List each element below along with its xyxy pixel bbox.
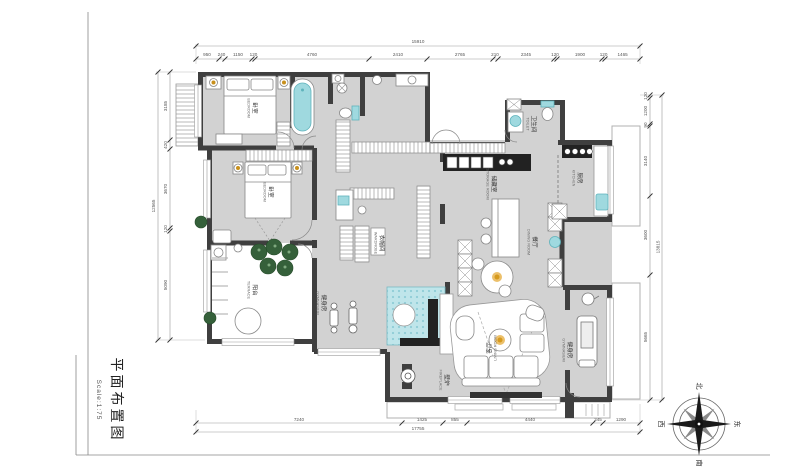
dim-text: 4760	[307, 52, 318, 57]
svg-text:KITCHEN: KITCHEN	[572, 170, 576, 187]
room-label-gym-center: 健身房GYMNASIUM	[316, 291, 329, 314]
sink-icon	[510, 116, 521, 127]
vanity-counter	[396, 74, 428, 86]
round-table	[393, 304, 415, 326]
round-table	[235, 308, 261, 334]
dim-text: 120	[600, 52, 608, 57]
treadmill-icon	[577, 316, 597, 367]
dim-text: 240	[218, 52, 226, 57]
svg-text:STORAGE ROOM: STORAGE ROOM	[486, 168, 490, 199]
dim-text: 950	[203, 52, 211, 57]
dim-text: 17755	[412, 426, 425, 431]
dim-text: 345	[594, 417, 602, 422]
room-label-wardrobe: 衣帽间WARDROBE	[374, 232, 387, 255]
floor-plan-page: 卧室BEDROOM 卧室BEDROOM 卫生间TOILET 厨房KITCHEN …	[0, 0, 800, 467]
svg-text:餐厅: 餐厅	[531, 236, 539, 248]
bar-counter	[492, 199, 519, 257]
svg-text:健身房: 健身房	[320, 295, 328, 312]
washer	[507, 99, 521, 110]
dim-text: 120	[643, 92, 648, 100]
kitchen-bay	[612, 126, 640, 226]
dim-text: 2345	[521, 52, 532, 57]
sink-icon	[596, 194, 608, 210]
svg-text:GYMNASIUM: GYMNASIUM	[316, 291, 320, 314]
svg-text:衣帽间: 衣帽间	[378, 235, 386, 252]
bathtub-icon	[291, 79, 314, 135]
dim-text: 3140	[643, 155, 648, 166]
stool	[234, 244, 242, 252]
svg-text:FIREPLACE: FIREPLACE	[439, 369, 443, 391]
dim-text: 120	[163, 225, 168, 233]
svg-text:卧室: 卧室	[267, 186, 275, 198]
drawing-title: 平面布置图	[109, 358, 125, 443]
toilet-icon	[541, 101, 554, 121]
svg-text:GYMNASIUM: GYMNASIUM	[562, 338, 566, 361]
fridge	[552, 204, 567, 219]
svg-text:WARDROBE: WARDROBE	[374, 232, 378, 255]
compass-south-label: 南	[695, 460, 704, 467]
stool	[481, 218, 491, 228]
stool	[481, 234, 491, 244]
dim-text: 1900	[575, 52, 586, 57]
room-label-toilet: 卫生间TOILET	[526, 116, 539, 133]
dim-text: 2765	[455, 52, 466, 57]
dim-text: 13815	[656, 240, 661, 253]
dim-text: 3600	[643, 229, 648, 240]
wall-column	[565, 393, 574, 418]
shower-icon	[337, 83, 347, 93]
svg-text:阳台: 阳台	[251, 284, 259, 296]
svg-text:DINING ROOM: DINING ROOM	[527, 229, 531, 255]
dim-text: 12565	[151, 199, 156, 212]
dim-text: 120	[551, 52, 559, 57]
compass-west-label: 西	[657, 421, 665, 428]
svg-text:BEDROOM: BEDROOM	[247, 98, 251, 118]
stool	[358, 206, 366, 214]
dim-text: 1200	[643, 105, 648, 116]
gym-bay	[612, 283, 640, 399]
dim-text: 1290	[616, 417, 627, 422]
dim-text: 15910	[412, 39, 425, 44]
dim-text: 120	[250, 52, 258, 57]
tall-cabinets	[458, 240, 472, 296]
svg-text:TOILET: TOILET	[526, 117, 530, 131]
dim-text: 2410	[393, 52, 404, 57]
dim-text: 4440	[525, 417, 536, 422]
dim-text: 5090	[163, 279, 168, 290]
svg-text:TERRACE: TERRACE	[247, 281, 251, 300]
bench	[216, 134, 242, 144]
svg-text:健身房: 健身房	[566, 342, 574, 359]
dim-text: 5665	[643, 331, 648, 342]
svg-text:卫生间: 卫生间	[530, 116, 538, 133]
chaise	[456, 316, 474, 340]
dim-text: 1425	[417, 417, 428, 422]
svg-text:厨房: 厨房	[576, 172, 584, 184]
svg-text:壁炉: 壁炉	[443, 374, 451, 386]
room-label-gym-right: 健身房GYMNASIUM	[562, 338, 575, 361]
shower-icon	[373, 76, 382, 85]
dresser	[213, 230, 231, 243]
dim-text: 3185	[163, 100, 168, 111]
dim-text: 855	[451, 417, 459, 422]
compass-rose-icon: 北 东 南 西	[657, 383, 742, 467]
dim-text: 420	[163, 141, 168, 149]
drawing-scale: Scale:1:75	[95, 380, 102, 421]
svg-text:客厅: 客厅	[485, 342, 493, 354]
compass-north-label: 北	[695, 383, 703, 390]
svg-text:LIVING ROOM: LIVING ROOM	[494, 335, 498, 360]
svg-text:BEDROOM: BEDROOM	[263, 182, 267, 202]
compass-east-label: 东	[733, 421, 742, 428]
dim-text: 1150	[233, 52, 243, 57]
dim-text: 210	[491, 52, 499, 57]
dim-text: 7240	[294, 417, 305, 422]
dim-text: 3670	[163, 183, 168, 194]
svg-text:储藏室: 储藏室	[490, 176, 498, 193]
tv-console	[470, 392, 542, 398]
floor-plan-svg: 卧室BEDROOM 卧室BEDROOM 卫生间TOILET 厨房KITCHEN …	[0, 0, 800, 467]
svg-text:卧室: 卧室	[251, 102, 259, 114]
dim-text: 90	[643, 122, 648, 128]
dim-text: 1465	[617, 52, 628, 57]
side-table	[582, 293, 594, 305]
